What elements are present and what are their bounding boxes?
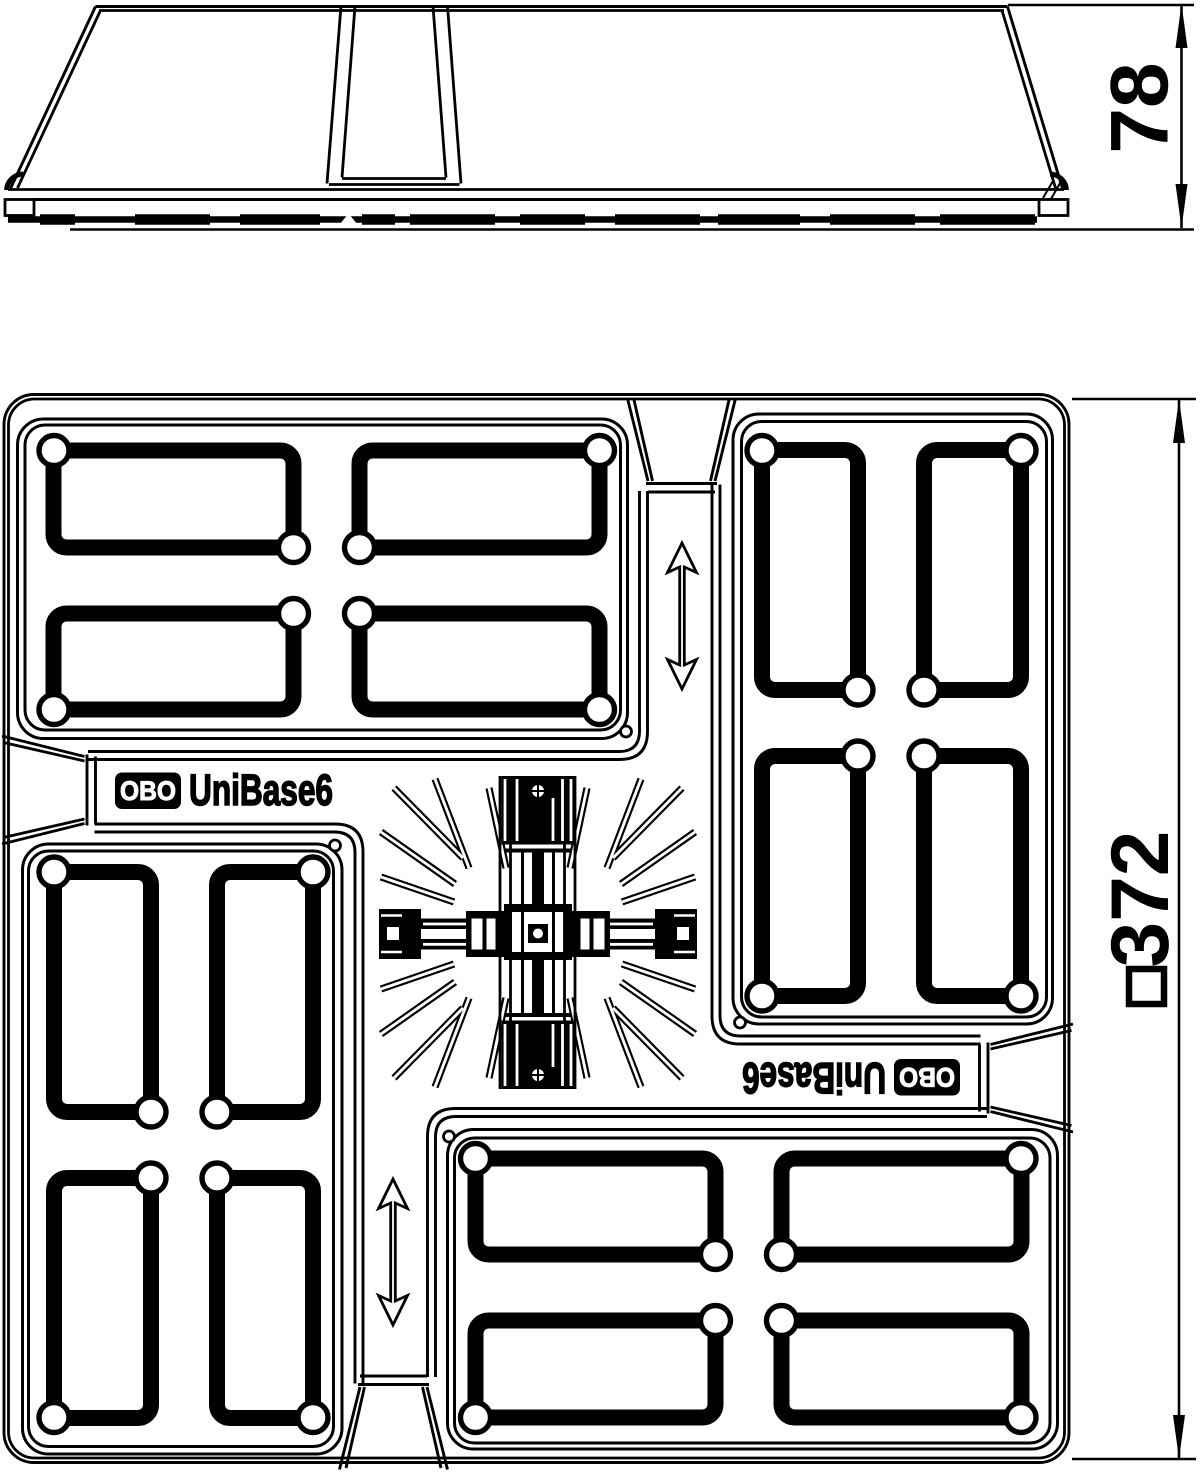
svg-text:78: 78 [1095, 62, 1186, 153]
svg-text:372: 372 [1095, 831, 1186, 968]
